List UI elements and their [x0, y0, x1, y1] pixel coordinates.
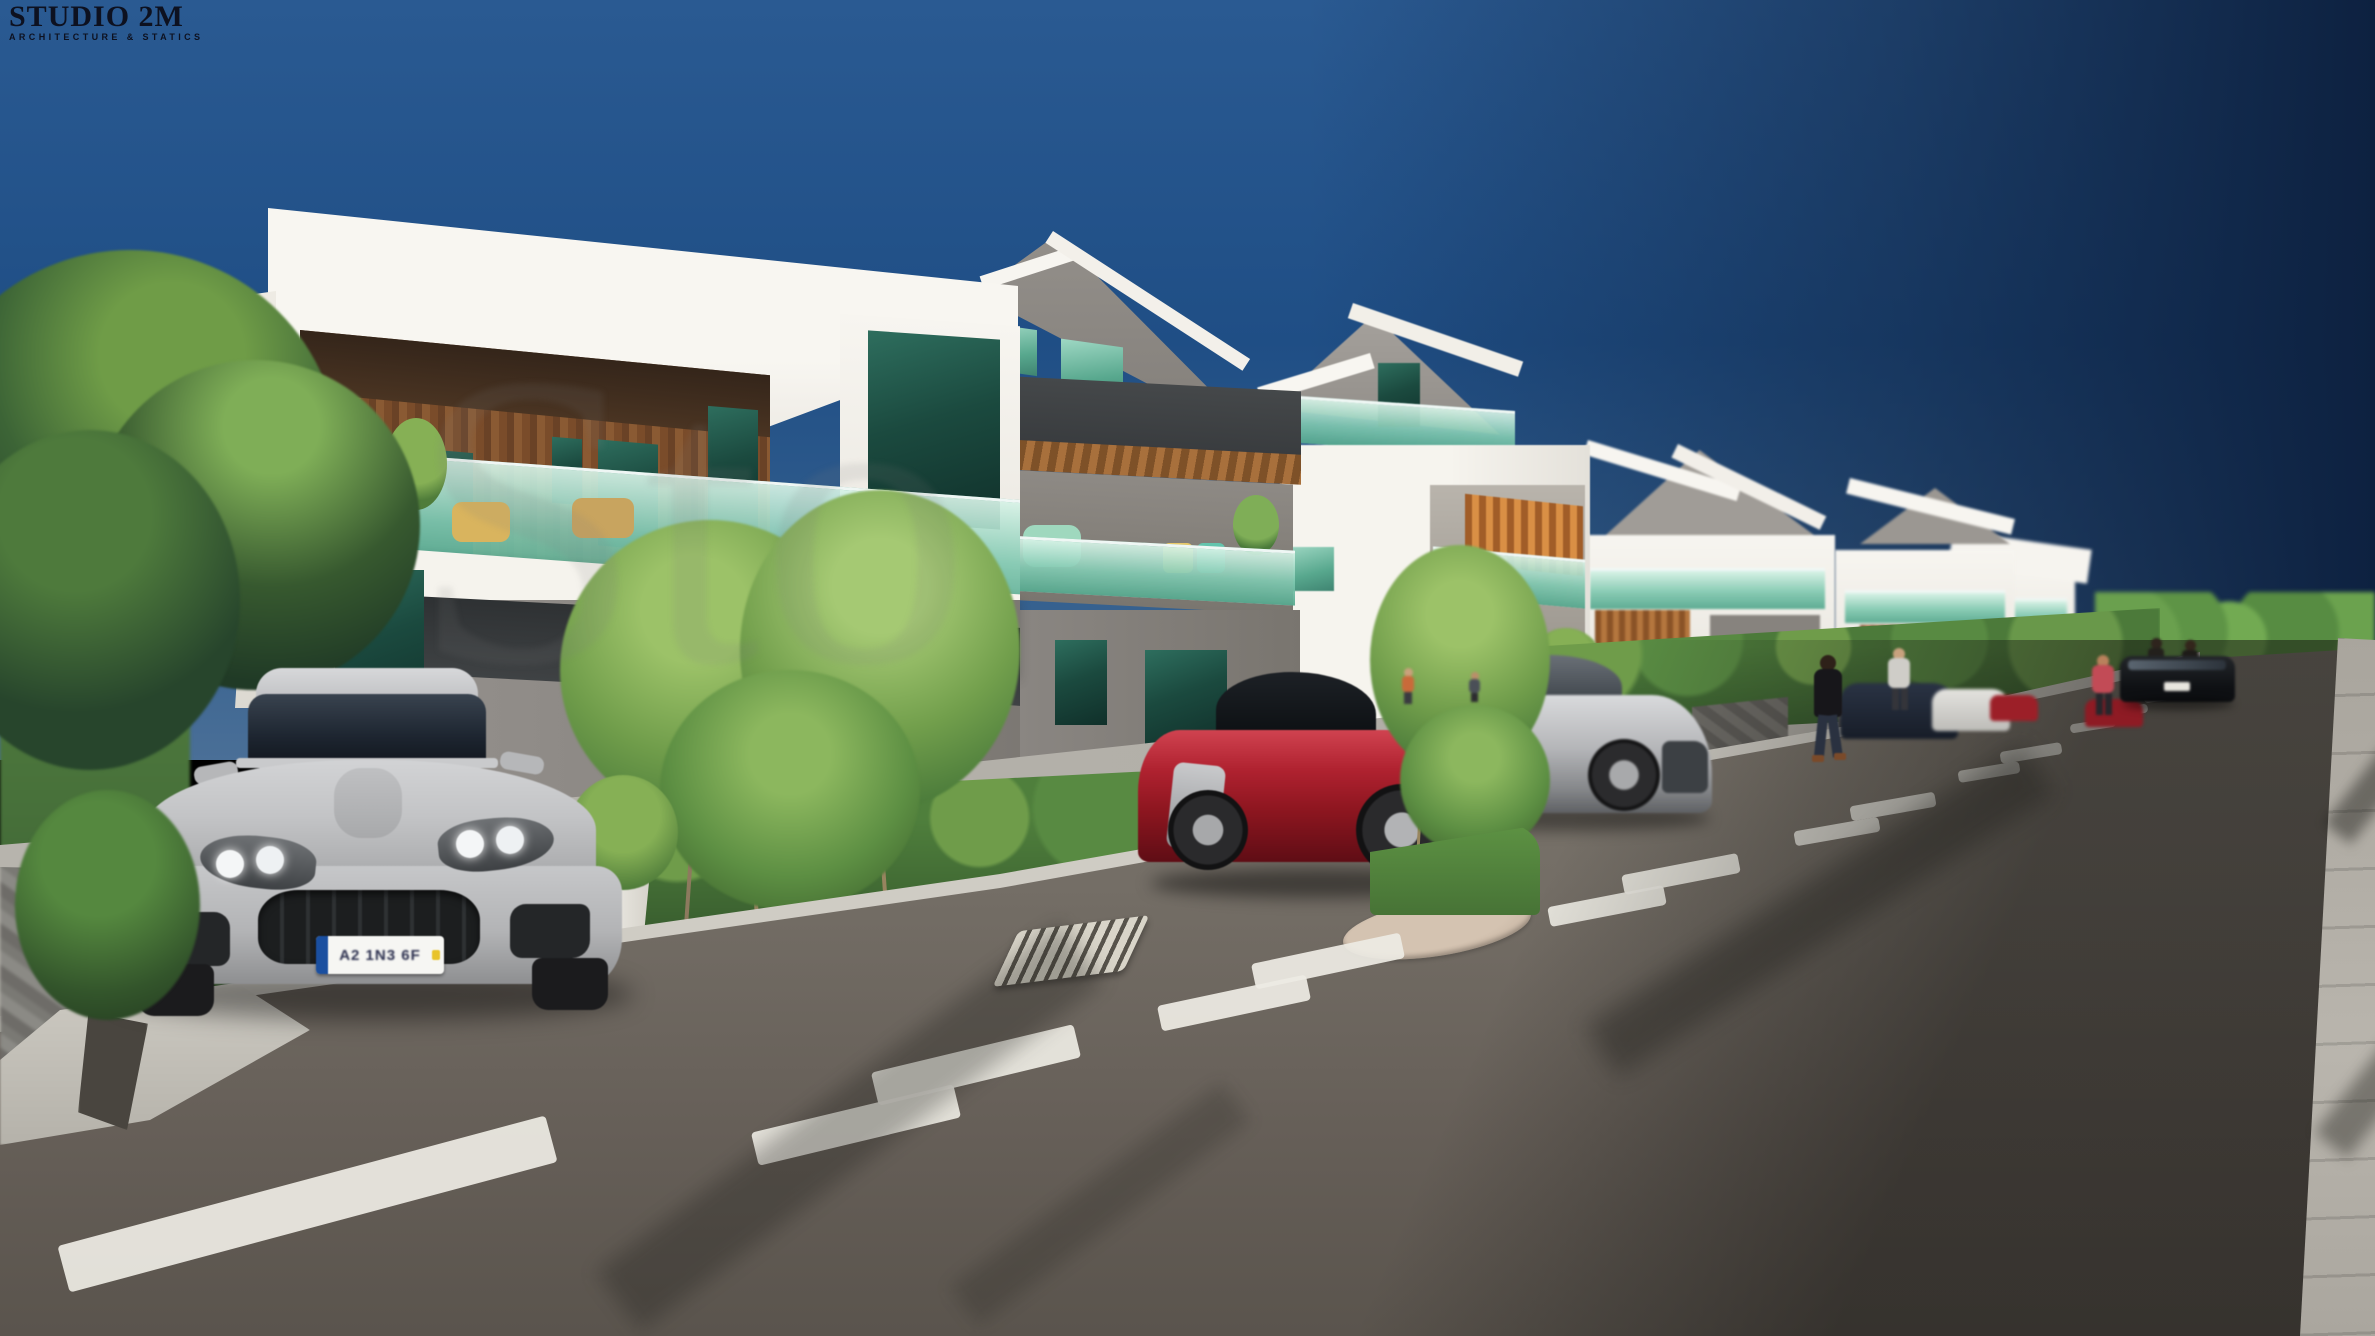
distant-car-red	[1990, 695, 2038, 721]
plate-number: A2 1N3 6F	[328, 947, 432, 964]
logo-title: STUDIO 2M	[9, 0, 203, 34]
license-plate: A2 1N3 6F	[316, 936, 444, 974]
pedestrian-woman-pink	[2088, 655, 2118, 717]
grass-mound	[1370, 825, 1540, 915]
plate-sticker	[432, 950, 440, 960]
car-mirror	[499, 750, 545, 775]
bush-left-foreground	[15, 790, 200, 1020]
pedestrian-small	[1400, 668, 1416, 704]
street-trees-2	[1360, 535, 1560, 935]
logo-subtitle: ARCHITECTURE & STATICS	[9, 32, 203, 42]
balcony-plant	[1233, 495, 1279, 555]
plate-eu-band	[316, 936, 328, 974]
pedestrian-woman-dark	[1806, 655, 1850, 767]
pedestrian-gray	[1884, 648, 1914, 712]
balcony-chair	[452, 502, 510, 542]
silver-coupe-grille	[1662, 741, 1708, 793]
silver-coupe-wheel	[1588, 739, 1660, 811]
architectural-street-render: A2 1N3 6F Sto STUDIO 2M ARCHITECTURE & S…	[0, 0, 2375, 1336]
red-car-wheel	[1168, 790, 1248, 870]
convertible-car	[2120, 638, 2240, 718]
studio-logo: STUDIO 2M ARCHITECTURE & STATICS	[9, 0, 203, 42]
pedestrian-small	[1468, 672, 1482, 702]
convertible-plate	[2164, 682, 2190, 691]
car-windshield	[248, 694, 486, 766]
